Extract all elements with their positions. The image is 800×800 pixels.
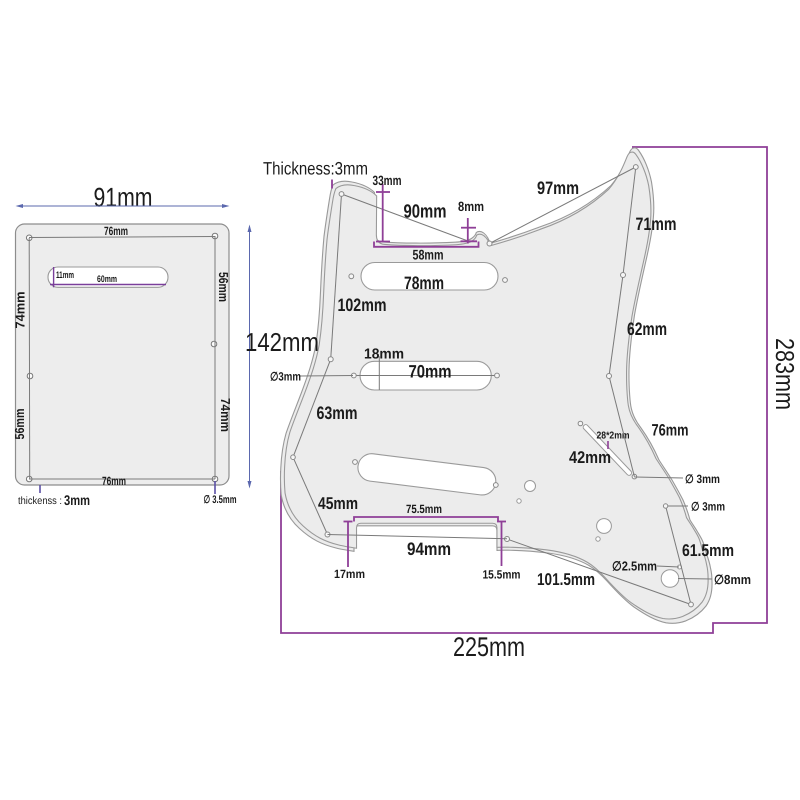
- svg-text:56mm: 56mm: [12, 409, 27, 440]
- svg-text:75.5mm: 75.5mm: [406, 502, 442, 516]
- svg-text:62mm: 62mm: [627, 319, 667, 339]
- svg-text:91mm: 91mm: [94, 183, 153, 213]
- svg-text:∅3mm: ∅3mm: [270, 370, 301, 384]
- svg-text:∅ 3mm: ∅ 3mm: [691, 500, 725, 514]
- svg-text:78mm: 78mm: [404, 273, 444, 293]
- svg-text:thickenss :: thickenss :: [18, 495, 62, 507]
- svg-text:97mm: 97mm: [537, 178, 579, 198]
- svg-text:Thickness:3mm: Thickness:3mm: [263, 159, 368, 179]
- svg-text:225mm: 225mm: [453, 632, 525, 662]
- svg-text:60mm: 60mm: [97, 274, 117, 285]
- svg-text:∅ 3.5mm: ∅ 3.5mm: [204, 494, 237, 506]
- svg-text:33mm: 33mm: [373, 173, 402, 188]
- svg-text:101.5mm: 101.5mm: [537, 570, 595, 589]
- svg-text:56mm: 56mm: [216, 272, 231, 302]
- svg-text:11mm: 11mm: [56, 270, 74, 281]
- svg-text:74mm: 74mm: [13, 292, 28, 329]
- svg-text:42mm: 42mm: [569, 448, 611, 467]
- svg-text:61.5mm: 61.5mm: [682, 541, 734, 560]
- svg-text:∅ 3mm: ∅ 3mm: [685, 472, 720, 486]
- svg-text:∅2.5mm: ∅2.5mm: [612, 559, 657, 574]
- svg-text:15.5mm: 15.5mm: [483, 568, 521, 582]
- svg-text:3mm: 3mm: [64, 492, 90, 508]
- svg-text:45mm: 45mm: [318, 494, 358, 513]
- svg-text:17mm: 17mm: [334, 567, 365, 581]
- svg-text:76mm: 76mm: [104, 224, 128, 238]
- svg-text:∅8mm: ∅8mm: [714, 572, 751, 587]
- svg-text:90mm: 90mm: [404, 202, 447, 223]
- svg-text:102mm: 102mm: [338, 295, 387, 315]
- svg-text:74mm: 74mm: [218, 398, 233, 432]
- svg-text:94mm: 94mm: [407, 539, 451, 559]
- svg-text:58mm: 58mm: [413, 247, 444, 263]
- svg-text:142mm: 142mm: [245, 327, 319, 357]
- svg-text:76mm: 76mm: [652, 422, 689, 440]
- svg-text:63mm: 63mm: [317, 403, 358, 423]
- svg-text:283mm: 283mm: [770, 338, 800, 410]
- svg-text:76mm: 76mm: [102, 474, 126, 488]
- svg-text:71mm: 71mm: [636, 214, 677, 234]
- svg-text:18mm: 18mm: [364, 347, 404, 363]
- svg-text:8mm: 8mm: [458, 199, 484, 214]
- svg-text:70mm: 70mm: [409, 362, 452, 382]
